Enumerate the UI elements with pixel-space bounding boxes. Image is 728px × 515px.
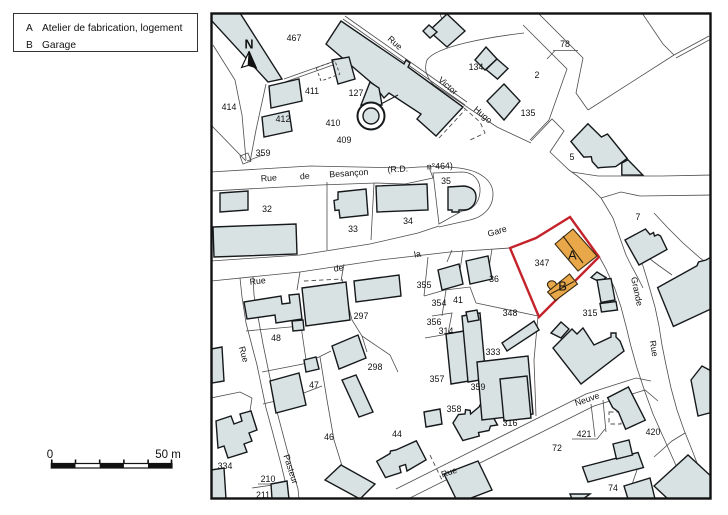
svg-text:5: 5 — [570, 152, 575, 162]
svg-text:358: 358 — [447, 404, 462, 414]
svg-text:421: 421 — [577, 429, 592, 439]
svg-text:32: 32 — [262, 204, 272, 214]
svg-text:46: 46 — [324, 432, 334, 442]
svg-text:359: 359 — [471, 382, 486, 392]
svg-text:72: 72 — [552, 443, 562, 453]
svg-text:359: 359 — [256, 148, 271, 158]
svg-text:355: 355 — [417, 280, 432, 290]
svg-text:34: 34 — [403, 216, 413, 226]
svg-text:7: 7 — [636, 212, 641, 222]
svg-text:135: 135 — [521, 108, 536, 118]
svg-text:78: 78 — [560, 39, 570, 49]
svg-text:Rue: Rue — [260, 172, 277, 183]
svg-text:74: 74 — [608, 483, 618, 493]
svg-text:333: 333 — [486, 347, 501, 357]
svg-text:409: 409 — [337, 135, 352, 145]
svg-text:314: 314 — [439, 326, 454, 336]
svg-text:348: 348 — [503, 308, 518, 318]
svg-text:467: 467 — [287, 33, 302, 43]
svg-text:414: 414 — [222, 102, 237, 112]
svg-text:(R.D.: (R.D. — [387, 163, 408, 174]
svg-text:B: B — [558, 279, 567, 294]
svg-text:411: 411 — [305, 86, 319, 96]
svg-text:297: 297 — [354, 311, 369, 321]
svg-text:Garage: Garage — [42, 40, 76, 51]
svg-text:410: 410 — [326, 118, 341, 128]
svg-text:A: A — [26, 23, 33, 34]
svg-text:de: de — [333, 262, 344, 273]
svg-text:357: 357 — [430, 374, 445, 384]
svg-text:50 m: 50 m — [155, 449, 181, 461]
svg-text:36: 36 — [489, 274, 499, 284]
svg-text:0: 0 — [47, 449, 53, 461]
svg-text:127: 127 — [349, 88, 364, 98]
svg-text:315: 315 — [583, 308, 598, 318]
svg-text:316: 316 — [503, 418, 518, 428]
svg-text:33: 33 — [348, 224, 358, 234]
svg-text:Atelier de fabrication, logeme: Atelier de fabrication, logement — [42, 23, 183, 34]
svg-text:48: 48 — [271, 333, 281, 343]
svg-text:A: A — [568, 247, 577, 262]
svg-text:35: 35 — [441, 176, 451, 186]
svg-text:n°464): n°464) — [427, 160, 454, 171]
svg-text:2: 2 — [535, 70, 540, 80]
svg-text:de: de — [300, 171, 311, 182]
svg-text:354: 354 — [432, 298, 447, 308]
svg-text:41: 41 — [453, 295, 463, 305]
svg-text:420: 420 — [646, 427, 661, 437]
svg-text:134: 134 — [469, 62, 484, 72]
svg-text:Rue: Rue — [249, 275, 266, 287]
svg-text:347: 347 — [535, 258, 550, 268]
svg-text:47: 47 — [309, 380, 319, 390]
svg-text:334: 334 — [218, 461, 233, 471]
svg-text:B: B — [26, 40, 33, 51]
svg-text:298: 298 — [368, 362, 383, 372]
svg-text:210: 210 — [261, 474, 276, 484]
svg-text:44: 44 — [392, 429, 402, 439]
svg-text:412: 412 — [276, 114, 291, 124]
svg-text:N: N — [244, 38, 253, 52]
